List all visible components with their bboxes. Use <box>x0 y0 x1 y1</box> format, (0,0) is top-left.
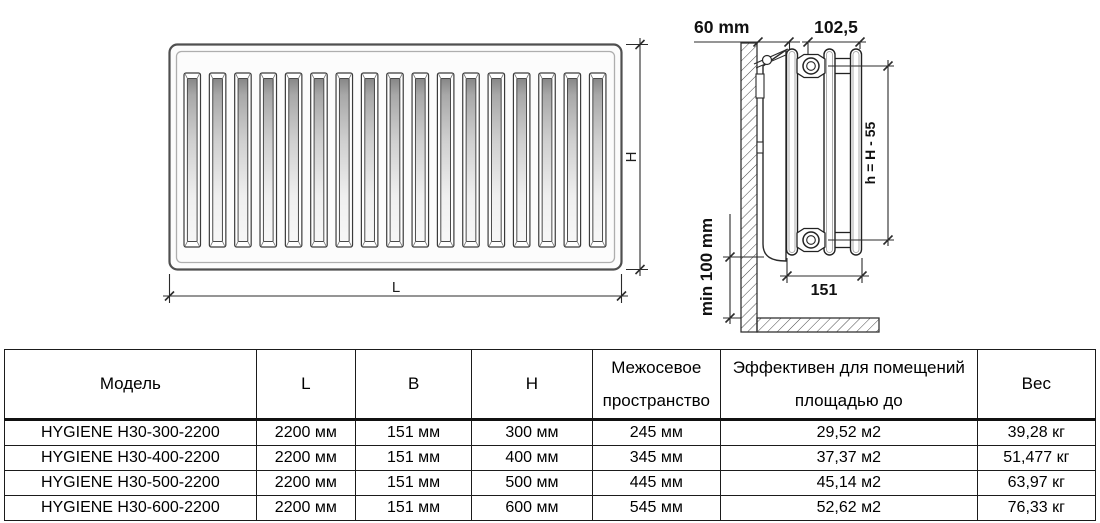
table-cell: 2200 мм <box>256 496 355 521</box>
axis-height-label: h = H - 55 <box>862 121 878 184</box>
spec-table-body: HYGIENE H30-300-22002200 мм151 мм300 мм2… <box>5 420 1096 521</box>
wall <box>741 43 757 332</box>
column-header-line: B <box>408 375 419 393</box>
table-row: HYGIENE H30-400-22002200 мм151 мм400 мм3… <box>5 446 1096 471</box>
table-cell: 39,28 кг <box>977 420 1095 446</box>
table-cell: 76,33 кг <box>977 496 1095 521</box>
radiator-slat <box>463 73 480 247</box>
table-cell: 600 мм <box>472 496 592 521</box>
table-cell: HYGIENE H30-400-2200 <box>5 446 257 471</box>
top-depth-label: 102,5 <box>814 17 858 37</box>
column-header: Вес <box>977 350 1095 420</box>
tube-connectors <box>835 59 851 248</box>
table-cell: 151 мм <box>355 496 471 521</box>
column-header-line: Эффективен для помещений <box>733 359 965 377</box>
table-cell: 345 мм <box>592 446 720 471</box>
radiator-slat <box>361 73 378 247</box>
table-cell: 52,62 м2 <box>720 496 977 521</box>
radiator-slat <box>184 73 201 247</box>
table-cell: 151 мм <box>355 446 471 471</box>
floor-clearance-label: min 100 mm <box>697 218 716 316</box>
radiator-slat <box>387 73 404 247</box>
radiator-slat <box>235 73 252 247</box>
radiator-slat <box>513 73 530 247</box>
column-header: Межосевоепространство <box>592 350 720 420</box>
column-header-line: Межосевое <box>611 359 701 377</box>
table-row: HYGIENE H30-300-22002200 мм151 мм300 мм2… <box>5 420 1096 446</box>
table-cell: 245 мм <box>592 420 720 446</box>
radiator-slat <box>209 73 226 247</box>
table-cell: 300 мм <box>472 420 592 446</box>
table-row: HYGIENE H30-600-22002200 мм151 мм600 мм5… <box>5 496 1096 521</box>
side-view: 60 mm 102,5 h = H - 55 <box>694 17 894 332</box>
table-cell: HYGIENE H30-600-2200 <box>5 496 257 521</box>
top-pipe-connection <box>803 58 819 74</box>
column-header: L <box>256 350 355 420</box>
wall-bracket <box>756 74 764 98</box>
radiator-slat <box>589 73 606 247</box>
technical-drawing: H L <box>0 0 1100 345</box>
radiator-slat <box>437 73 454 247</box>
table-cell: 63,97 кг <box>977 471 1095 496</box>
table-cell: 45,14 м2 <box>720 471 977 496</box>
dimension-depth <box>780 258 869 283</box>
table-cell: 2200 мм <box>256 446 355 471</box>
spec-table: МодельLBHМежосевоепространствоЭффективен… <box>4 349 1096 521</box>
column-header-line: H <box>526 375 538 393</box>
table-row: HYGIENE H30-500-22002200 мм151 мм500 мм4… <box>5 471 1096 496</box>
table-cell: 51,477 кг <box>977 446 1095 471</box>
length-label: L <box>392 279 400 296</box>
radiator-slat <box>488 73 505 247</box>
table-cell: HYGIENE H30-500-2200 <box>5 471 257 496</box>
column-header: H <box>472 350 592 420</box>
radiator-spec-sheet: H L <box>0 0 1100 523</box>
table-cell: 400 мм <box>472 446 592 471</box>
table-cell: HYGIENE H30-300-2200 <box>5 420 257 446</box>
bottom-hub <box>797 229 825 252</box>
column-header: Эффективен для помещенийплощадью до <box>720 350 977 420</box>
column-header-line: Модель <box>100 375 161 393</box>
radiator-slat <box>412 73 429 247</box>
table-cell: 445 мм <box>592 471 720 496</box>
radiator-slat <box>336 73 353 247</box>
radiator-slat <box>285 73 302 247</box>
table-cell: 545 мм <box>592 496 720 521</box>
column-header: Модель <box>5 350 257 420</box>
convector-tubes <box>787 49 862 255</box>
column-header-line: площадью до <box>795 392 903 410</box>
height-label: H <box>623 152 640 163</box>
radiator-slat <box>260 73 277 247</box>
radiator-slat <box>311 73 328 247</box>
table-cell: 29,52 м2 <box>720 420 977 446</box>
wall-offset-label: 60 mm <box>694 17 749 37</box>
radiator-slat <box>564 73 581 247</box>
column-header-line: Вес <box>1022 375 1051 393</box>
radiator-slats <box>184 73 606 247</box>
depth-label: 151 <box>811 282 838 299</box>
column-header-line: пространство <box>603 392 710 410</box>
table-cell: 151 мм <box>355 471 471 496</box>
air-vent <box>763 56 772 65</box>
spec-table-container: МодельLBHМежосевоепространствоЭффективен… <box>4 349 1096 521</box>
table-cell: 2200 мм <box>256 420 355 446</box>
table-cell: 2200 мм <box>256 471 355 496</box>
radiator-slat <box>539 73 556 247</box>
floor <box>757 318 879 332</box>
table-cell: 500 мм <box>472 471 592 496</box>
column-header-line: L <box>301 375 310 393</box>
table-cell: 151 мм <box>355 420 471 446</box>
bottom-pipe-connection <box>803 232 819 248</box>
top-hub <box>797 55 825 78</box>
radiator-side-panel <box>763 50 786 261</box>
wall-bracket <box>757 142 763 153</box>
column-header: B <box>355 350 471 420</box>
table-cell: 37,37 м2 <box>720 446 977 471</box>
header-row: МодельLBHМежосевоепространствоЭффективен… <box>5 350 1096 420</box>
spec-table-head: МодельLBHМежосевоепространствоЭффективен… <box>5 350 1096 420</box>
front-view: H L <box>163 38 648 303</box>
